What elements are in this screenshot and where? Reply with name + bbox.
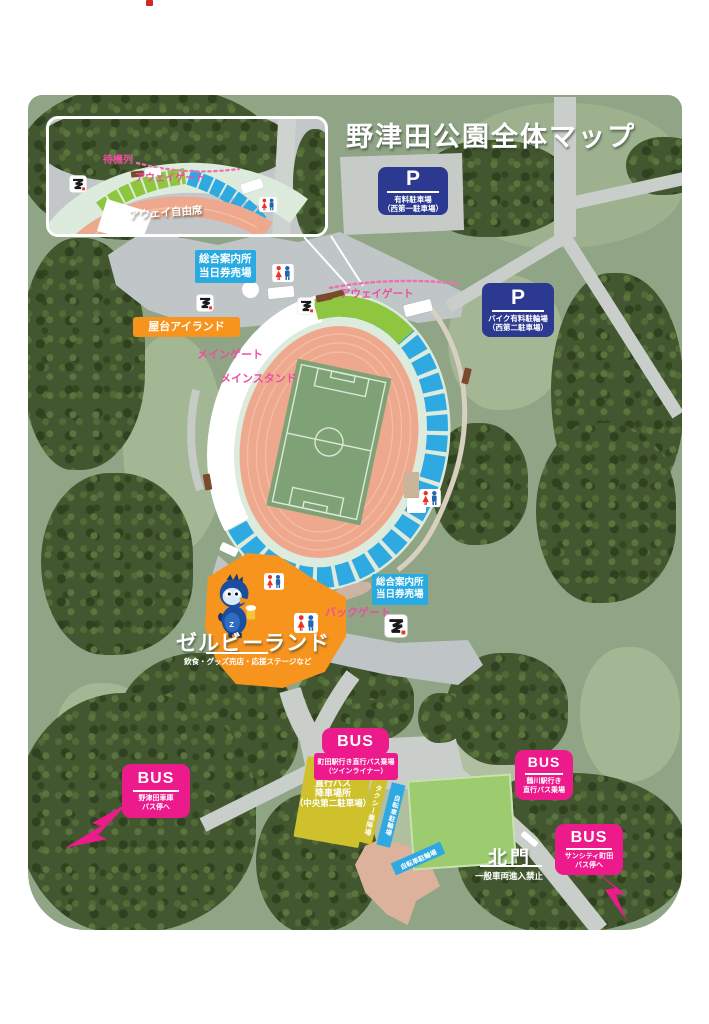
page-title: 野津田公園全体マップ xyxy=(346,115,636,154)
bus-stop-tsurukawa: BUS 鶴川駅行き 直行バス乗場 xyxy=(515,750,573,800)
yatai-island-badge: 屋台アイランド xyxy=(133,317,240,337)
parking-badge-west1: P 有料駐車場 （西第一駐車場） xyxy=(378,167,448,215)
north-gate-underline xyxy=(480,865,542,867)
bus-stop-machida-lines: 町田駅行き直行バス乗場 （ツインライナー） xyxy=(314,753,398,780)
zelvy-underline xyxy=(206,652,268,654)
bus-stop-machida-badge: BUS xyxy=(322,728,389,755)
toilet-icon xyxy=(419,489,441,507)
bus-route-arrow xyxy=(65,803,128,848)
zelvy-land-description: 飲食・グッズ売店・応援ステージなど xyxy=(184,656,311,667)
parking-icon: P xyxy=(511,288,525,308)
dropoff-label: 直行バス 降車場所 （中央第二駐車場） xyxy=(291,778,375,808)
info-booth-top: 総合案内所 当日券売場 xyxy=(195,250,256,283)
z-mark-icon xyxy=(196,294,214,312)
toilet-icon xyxy=(294,613,318,633)
toilet-icon xyxy=(264,573,284,590)
info-booth-back: 総合案内所 当日券売場 xyxy=(372,574,428,605)
main-stand-label: メインスタンド xyxy=(220,370,297,386)
bus-stop-nozuta-depot: BUS 野津田車庫 バス停へ xyxy=(122,764,190,818)
back-gate-label: バックゲート xyxy=(325,604,391,620)
parking-badge-west2: P バイク有料駐輪場 （西第二駐車場） xyxy=(482,283,554,337)
z-mark-icon xyxy=(297,297,315,315)
parking-icon: P xyxy=(406,169,420,189)
park-map: 待機列 アウェイゲート アウェイ自由席 Z xyxy=(28,95,682,930)
logo-mark xyxy=(146,0,153,6)
toilet-icon xyxy=(272,264,294,282)
z-mark-icon xyxy=(384,614,408,638)
north-gate-note: 一般車両進入禁止 xyxy=(475,870,543,882)
main-gate-label: メインゲート xyxy=(197,346,263,362)
park-map-page: 待機列 アウェイゲート アウェイ自由席 Z xyxy=(0,0,709,1024)
away-gate-label: アウェイゲート xyxy=(340,286,414,301)
bus-stop-suncity: BUS サンシティ町田 バス停へ xyxy=(555,824,623,875)
